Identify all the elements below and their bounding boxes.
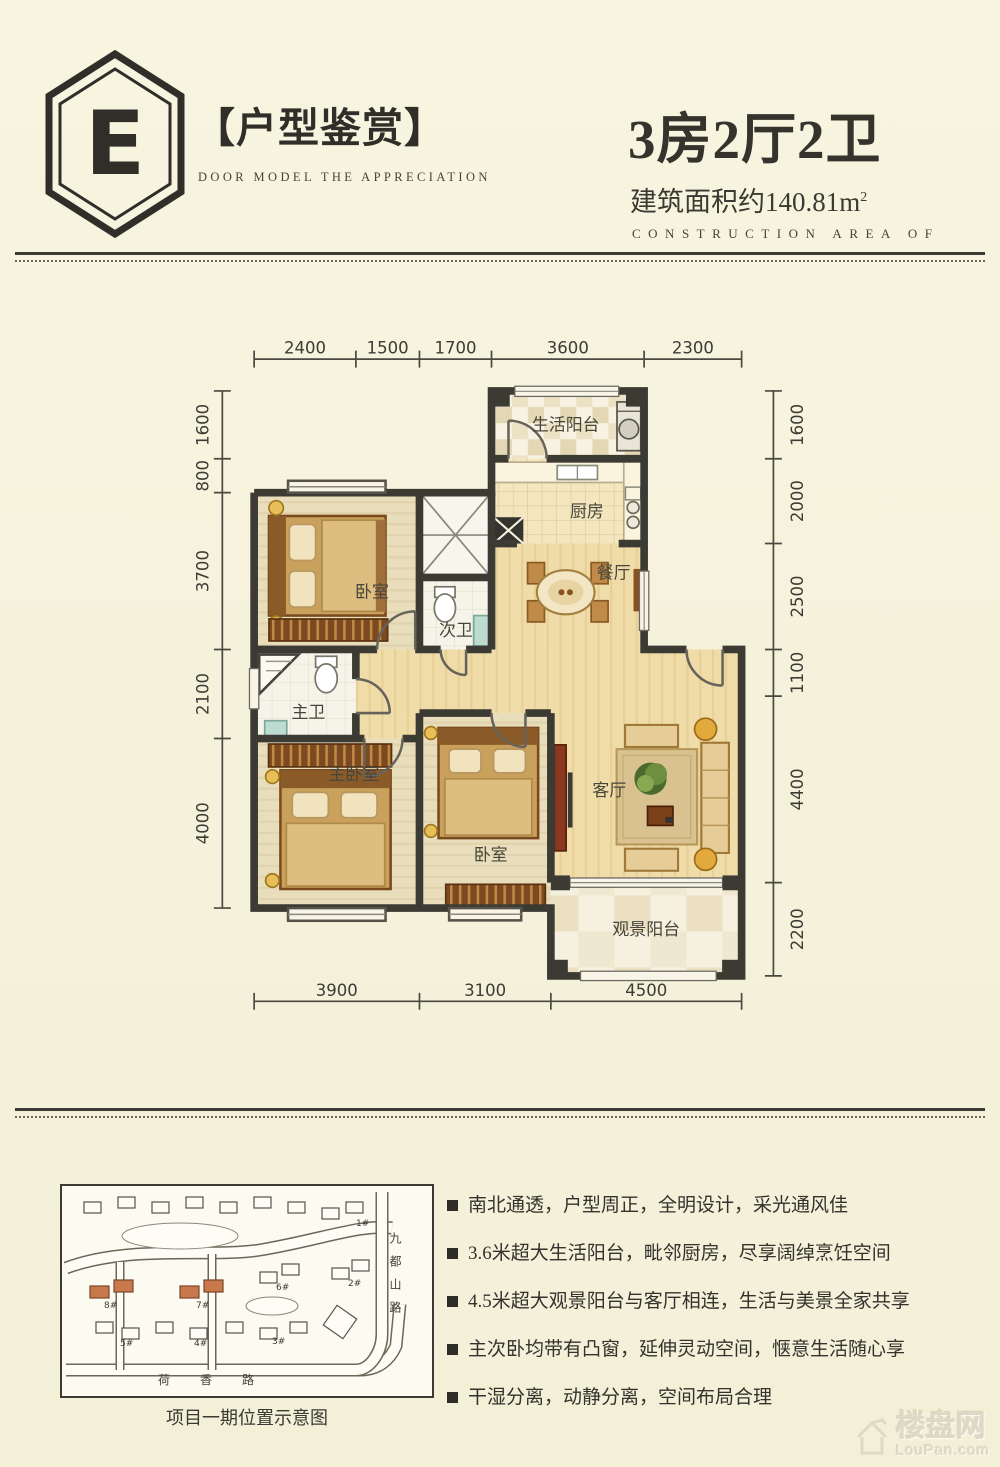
floor-plan-svg: 生活阳台 厨房 次卫 餐厅 卧室 主卫 主卧室 卧室 客厅 观景阳台 2400 … — [163, 316, 837, 1072]
window — [581, 971, 717, 980]
dim-right: 2000 — [788, 480, 807, 522]
divider-bottom — [15, 1108, 985, 1118]
floor-plan: 生活阳台 厨房 次卫 餐厅 卧室 主卫 主卧室 卧室 客厅 观景阳台 2400 … — [163, 316, 837, 1072]
bed-top-bedroom — [269, 501, 388, 641]
area-superscript: 2 — [860, 190, 867, 205]
dim-top: 2300 — [672, 339, 714, 358]
dim-right: 1600 — [788, 404, 807, 446]
label-second-bath: 次卫 — [439, 620, 473, 640]
toilet — [434, 594, 455, 622]
toilet — [315, 664, 337, 693]
area-label: 建筑面积约140.81m — [630, 187, 860, 217]
dim-top: 1700 — [434, 339, 476, 358]
site-map-svg: 1# 2# 3# 4# 5# 6# 7# 8# — [60, 1184, 434, 1398]
feature-text: 3.6米超大生活阳台，毗邻厨房，尽享阔绰烹饪空间 — [468, 1241, 891, 1267]
building-label: 3# — [272, 1337, 285, 1347]
building-label: 8# — [104, 1301, 117, 1311]
label-living-room: 客厅 — [592, 780, 626, 800]
square-bullet-icon — [447, 1296, 458, 1307]
divider-top — [15, 252, 985, 262]
feature-text: 干湿分离，动静分离，空间布局合理 — [468, 1385, 772, 1411]
tv-cabinet — [554, 745, 566, 851]
loveseat — [625, 849, 678, 871]
dim-top: 1500 — [367, 339, 409, 358]
dim-bottom: 4500 — [625, 981, 667, 1000]
area-line: 建筑面积约140.81m2 — [630, 180, 867, 219]
dim-bottom: 3900 — [316, 981, 358, 1000]
wardrobe — [269, 744, 392, 767]
building-label: 5# — [120, 1339, 133, 1349]
site-map: 1# 2# 3# 4# 5# 6# 7# 8# 九都山路 荷香路 — [60, 1184, 434, 1398]
hallway-floor — [356, 649, 551, 713]
feature-list: 南北通透，户型周正，全明设计，采光通风佳 3.6米超大生活阳台，毗邻厨房，尽享阔… — [447, 1193, 977, 1411]
dim-right: 2500 — [788, 575, 807, 617]
square-bullet-icon — [447, 1248, 458, 1259]
dim-left: 1600 — [193, 404, 212, 446]
tv — [568, 772, 573, 827]
flyer-page: E 【户型鉴赏】 DOOR MODEL THE APPRECIATION 3房2… — [0, 0, 1000, 1467]
dim-bottom: 3100 — [464, 981, 506, 1000]
wardrobe — [446, 884, 546, 905]
label-bedroom-bottom: 卧室 — [474, 845, 508, 865]
side-table — [695, 718, 717, 740]
feature-item: 南北通透，户型周正，全明设计，采光通风佳 — [447, 1193, 977, 1219]
feature-text: 4.5米超大观景阳台与客厅相连，生活与美景全家共享 — [468, 1289, 910, 1315]
feature-text: 南北通透，户型周正，全明设计，采光通风佳 — [468, 1193, 848, 1219]
wardrobe — [269, 619, 388, 641]
feature-item: 主次卧均带有凸窗，延伸灵动空间，惬意生活随心享 — [447, 1337, 977, 1363]
building-label: 7# — [196, 1301, 209, 1311]
label-kitchen: 厨房 — [570, 501, 604, 521]
loveseat — [625, 725, 678, 747]
washing-machine — [617, 402, 641, 451]
road-label-bottom: 荷香路 — [158, 1371, 284, 1388]
label-life-balcony: 生活阳台 — [532, 414, 600, 434]
dim-left: 4000 — [193, 802, 212, 844]
square-bullet-icon — [447, 1392, 458, 1403]
building-label: 4# — [194, 1339, 207, 1349]
dim-left: 2100 — [193, 673, 212, 715]
page-subtitle: DOOR MODEL THE APPRECIATION — [198, 170, 491, 185]
logo-letter: E — [85, 92, 145, 195]
dim-right: 1100 — [788, 652, 807, 694]
stove-burner — [627, 516, 639, 528]
building-label: 6# — [276, 1283, 289, 1293]
feature-item: 3.6米超大生活阳台，毗邻厨房，尽享阔绰烹饪空间 — [447, 1241, 977, 1267]
feature-item: 4.5米超大观景阳台与客厅相连，生活与美景全家共享 — [447, 1289, 977, 1315]
unit-type: 3房2厅2卫 — [628, 94, 882, 174]
label-view-balcony: 观景阳台 — [612, 919, 680, 939]
stove-burner — [627, 502, 639, 514]
label-dining: 餐厅 — [597, 562, 631, 582]
watermark-cn: 楼盘网 — [896, 1412, 990, 1442]
dim-right: 4400 — [788, 768, 807, 810]
dim-left: 3700 — [193, 550, 212, 592]
dim-left: 800 — [193, 460, 212, 492]
page-title: 【户型鉴赏】 — [194, 94, 446, 154]
square-bullet-icon — [447, 1344, 458, 1355]
site-map-caption: 项目一期位置示意图 — [60, 1404, 434, 1430]
building-label: 2# — [348, 1279, 361, 1289]
dim-top: 3600 — [547, 339, 589, 358]
dim-top: 2400 — [284, 339, 326, 358]
feature-item: 干湿分离，动静分离，空间布局合理 — [447, 1385, 977, 1411]
label-master-bath: 主卫 — [291, 702, 325, 722]
side-table — [695, 848, 717, 870]
basin — [265, 721, 287, 736]
label-master-bedroom: 主卧室 — [328, 764, 379, 784]
dim-right: 2200 — [788, 908, 807, 950]
area-english: CONSTRUCTION AREA OF — [632, 226, 939, 242]
house-icon — [852, 1415, 892, 1459]
building-label: 1# — [356, 1219, 369, 1229]
road-label-right: 九都山路 — [387, 1232, 404, 1324]
basin — [474, 616, 489, 647]
square-bullet-icon — [447, 1200, 458, 1211]
logo-hexagon: E — [44, 50, 186, 243]
label-bedroom-top: 卧室 — [355, 581, 389, 601]
feature-text: 主次卧均带有凸窗，延伸灵动空间，惬意生活随心享 — [468, 1337, 905, 1363]
watermark-en: LouPan.com — [896, 1442, 990, 1459]
window — [249, 669, 258, 709]
watermark: 楼盘网 LouPan.com — [852, 1412, 990, 1459]
